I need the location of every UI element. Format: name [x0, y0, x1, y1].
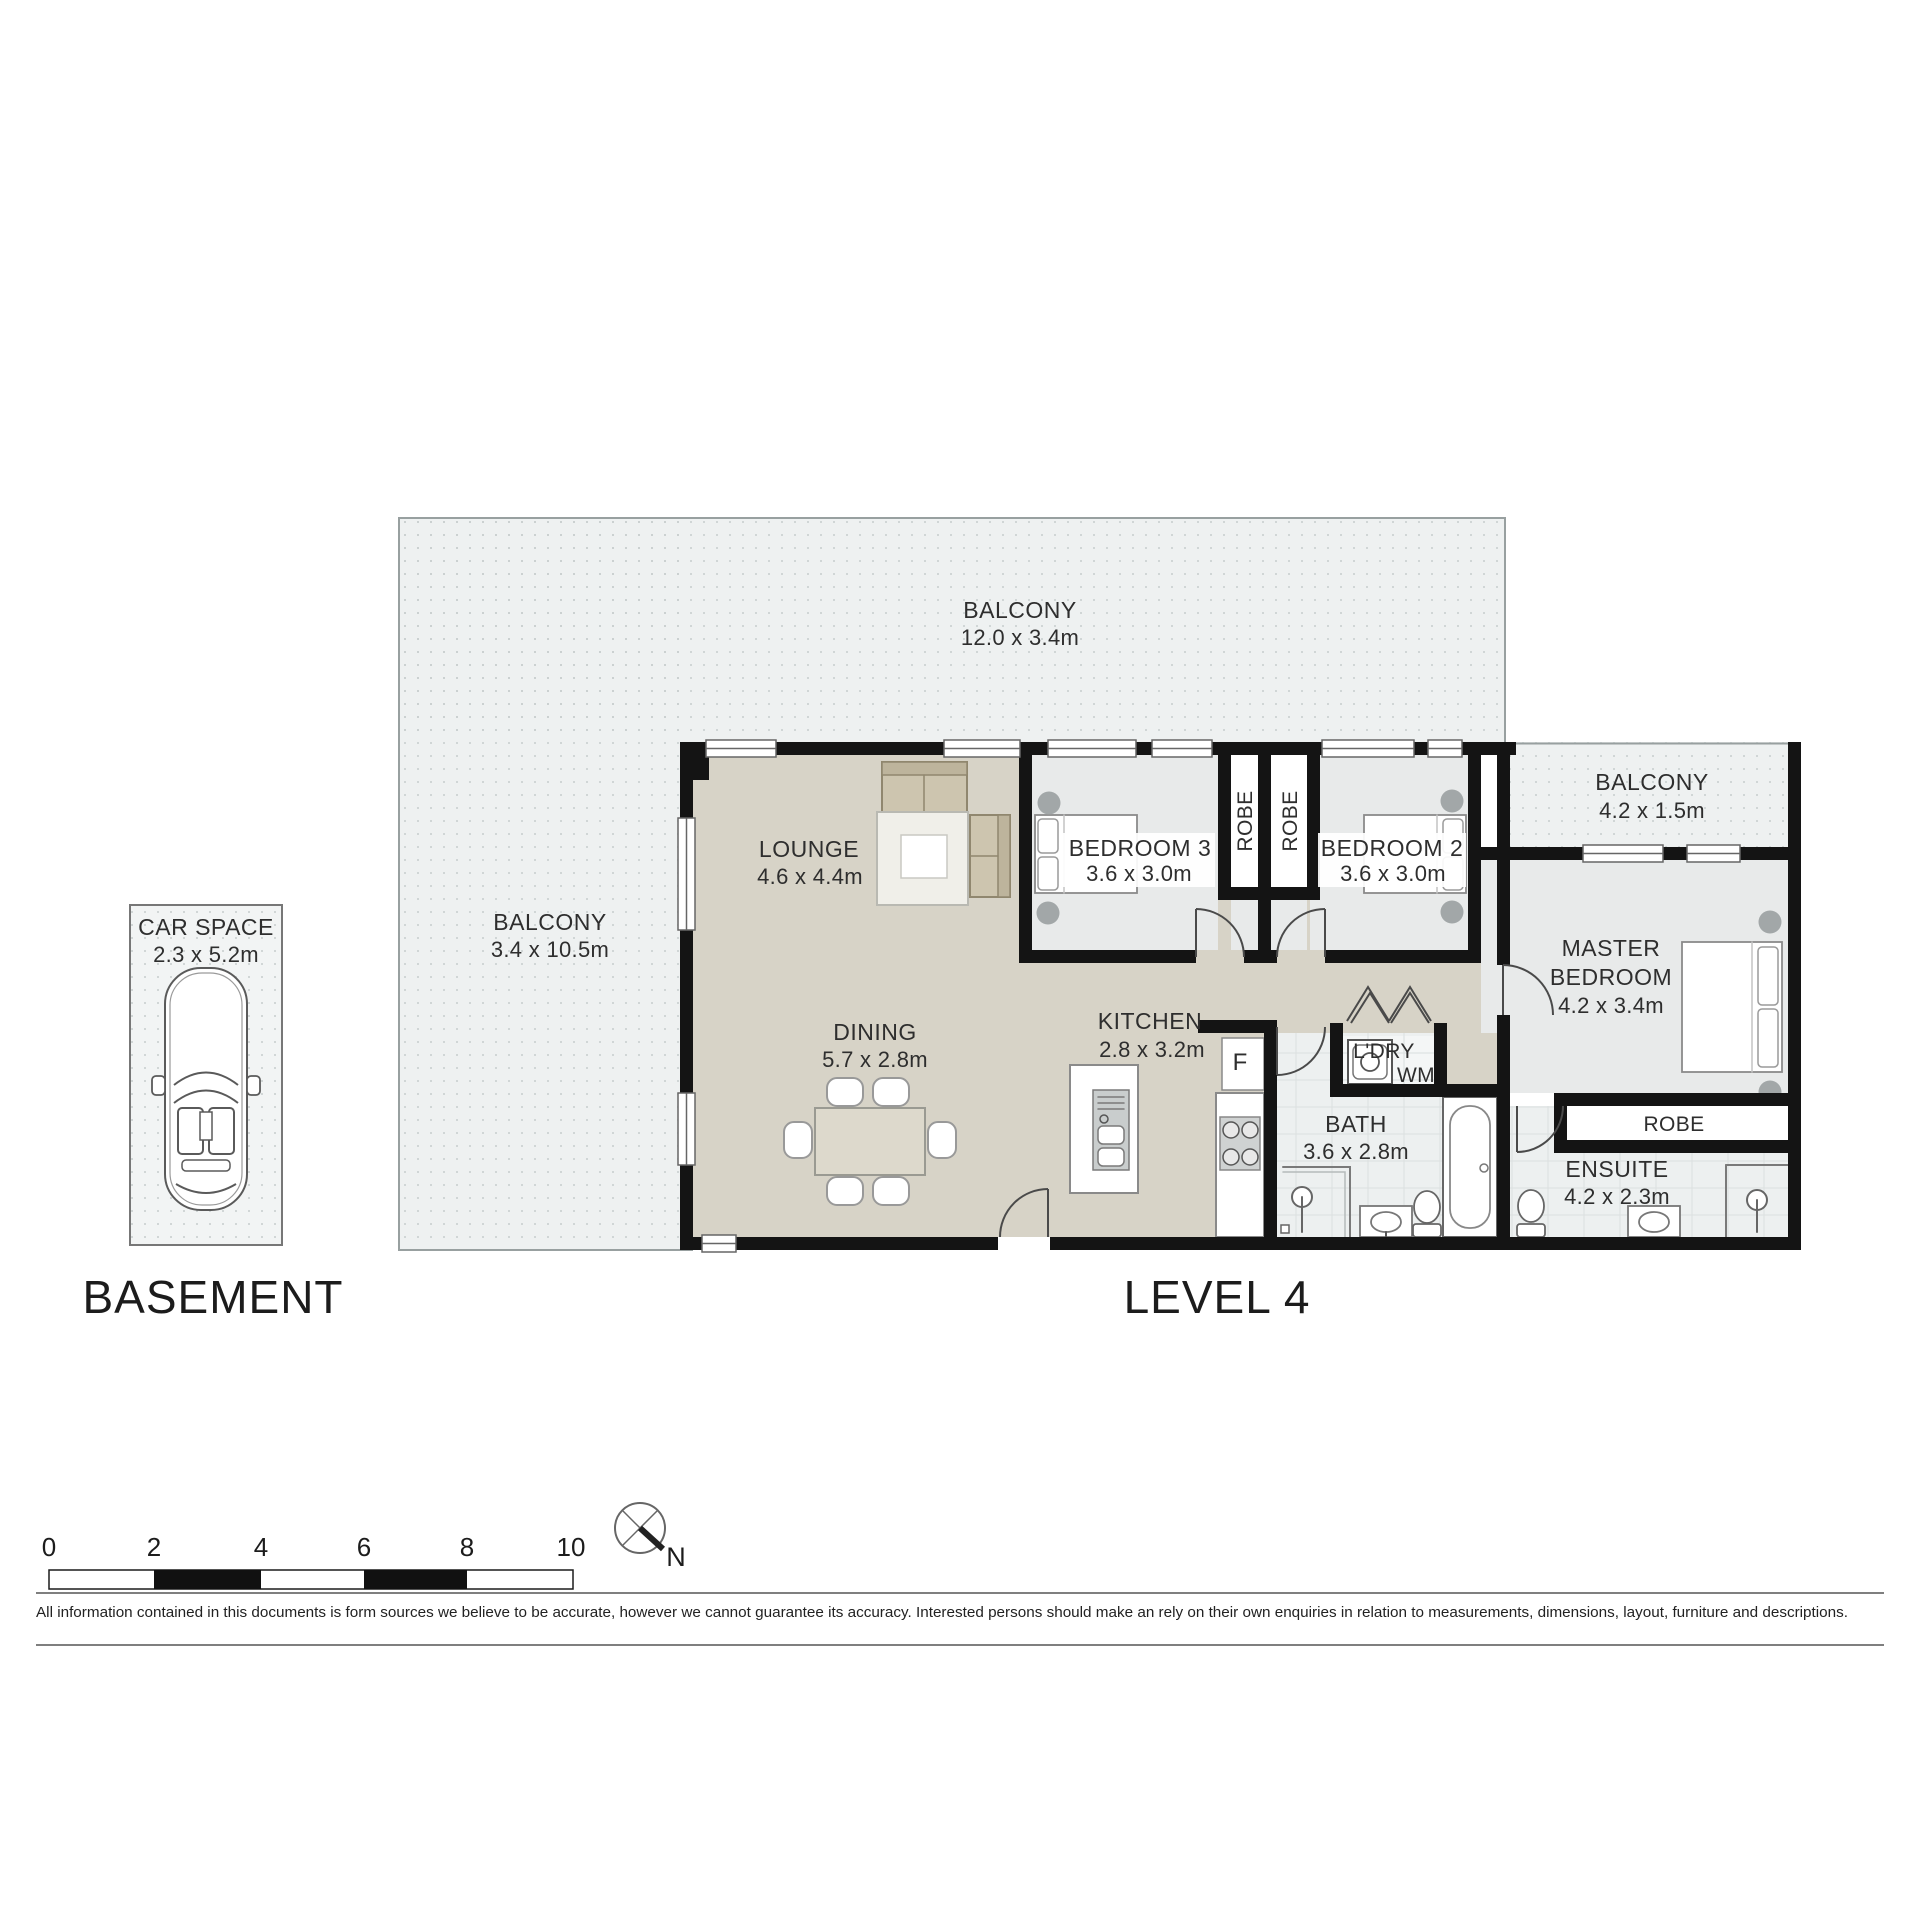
window [706, 740, 776, 757]
scale-bar: 0 2 4 6 8 10 [42, 1532, 586, 1589]
burner [1242, 1122, 1258, 1138]
chair [784, 1122, 812, 1158]
window [944, 740, 1020, 757]
burner [1223, 1122, 1239, 1138]
chair [928, 1122, 956, 1158]
window [1048, 740, 1136, 757]
chair [827, 1177, 863, 1205]
car-space: CAR SPACE 2.3 x 5.2m [130, 905, 282, 1245]
master-label-2: BEDROOM [1550, 964, 1672, 990]
chair [873, 1177, 909, 1205]
footer: All information contained in this docume… [36, 1593, 1884, 1645]
bedroom2-dims: 3.6 x 3.0m [1340, 861, 1446, 886]
exterior-notch [1481, 755, 1497, 847]
bedroom3-label: BEDROOM 3 [1069, 835, 1212, 861]
balcony-left-label: BALCONY [493, 909, 606, 935]
chair [873, 1078, 909, 1106]
basement-title: BASEMENT [82, 1271, 343, 1323]
window [678, 818, 695, 930]
laundry-label: L'DRY [1353, 1040, 1415, 1063]
scale-tick-0: 0 [42, 1532, 56, 1562]
robe-master-label: ROBE [1643, 1113, 1704, 1136]
bath-label: BATH [1325, 1111, 1387, 1137]
scale-tick-6: 6 [357, 1532, 371, 1562]
kitchen-dims: 2.8 x 3.2m [1099, 1037, 1205, 1062]
washing-machine-label: WM [1397, 1064, 1435, 1087]
dining-label: DINING [833, 1019, 917, 1045]
window [702, 1235, 736, 1252]
scale-bar-segment [364, 1570, 467, 1589]
window [1152, 740, 1212, 757]
scale-bar-track [49, 1570, 573, 1589]
coffee-table [877, 812, 968, 905]
floor-titles: BASEMENT LEVEL 4 [82, 1271, 1310, 1323]
level-title: LEVEL 4 [1124, 1271, 1311, 1323]
scale-tick-2: 2 [147, 1532, 161, 1562]
fridge-label: F [1233, 1049, 1248, 1076]
car-icon [152, 968, 260, 1210]
hall-floor [1447, 1033, 1497, 1084]
scale-tick-10: 10 [557, 1532, 586, 1562]
window [678, 1093, 695, 1165]
scale-tick-4: 4 [254, 1532, 268, 1562]
chair [827, 1078, 863, 1106]
floor-plan-image: BALCONY 12.0 x 3.4m BALCONY 3.4 x 10.5m … [0, 0, 1920, 1920]
north-label: N [666, 1542, 686, 1572]
bedroom2-label: BEDROOM 2 [1321, 835, 1464, 861]
ensuite-label: ENSUITE [1565, 1156, 1668, 1182]
scale-bar-segment [154, 1570, 261, 1589]
window [1428, 740, 1462, 757]
balcony-right-label: BALCONY [1595, 769, 1708, 795]
balcony-left-dims: 3.4 x 10.5m [491, 937, 609, 962]
window [1322, 740, 1414, 757]
scale-tick-8: 8 [460, 1532, 474, 1562]
balcony-top-dims: 12.0 x 3.4m [961, 625, 1079, 650]
balcony-top-label: BALCONY [963, 597, 1076, 623]
floor-plan-page: BALCONY 12.0 x 3.4m BALCONY 3.4 x 10.5m … [0, 0, 1920, 1920]
sofa [882, 762, 967, 812]
bedroom3-dims: 3.6 x 3.0m [1086, 861, 1192, 886]
bed-master [1682, 942, 1782, 1072]
car-space-dims: 2.3 x 5.2m [153, 942, 259, 967]
armchair [970, 815, 1010, 897]
car-space-label: CAR SPACE [138, 914, 274, 940]
burner [1223, 1149, 1239, 1165]
robe-right-label: ROBE [1279, 790, 1302, 851]
ensuite-dims: 4.2 x 2.3m [1564, 1184, 1670, 1209]
compass: N [615, 1503, 686, 1572]
robe-left-label: ROBE [1234, 790, 1257, 851]
burner [1242, 1149, 1258, 1165]
window [1687, 845, 1740, 862]
lounge-label: LOUNGE [759, 836, 859, 862]
balcony-right-dims: 4.2 x 1.5m [1599, 798, 1705, 823]
dining-dims: 5.7 x 2.8m [822, 1047, 928, 1072]
bath-dims: 3.6 x 2.8m [1303, 1139, 1409, 1164]
bath-toilet [1414, 1191, 1440, 1223]
master-dims: 4.2 x 3.4m [1558, 993, 1664, 1018]
kitchen-label: KITCHEN [1098, 1008, 1202, 1034]
window [1583, 845, 1663, 862]
disclaimer-text: All information contained in this docume… [36, 1604, 1848, 1621]
ensuite-toilet [1518, 1190, 1544, 1222]
lounge-dims: 4.6 x 4.4m [757, 864, 863, 889]
master-label-1: MASTER [1562, 935, 1661, 961]
